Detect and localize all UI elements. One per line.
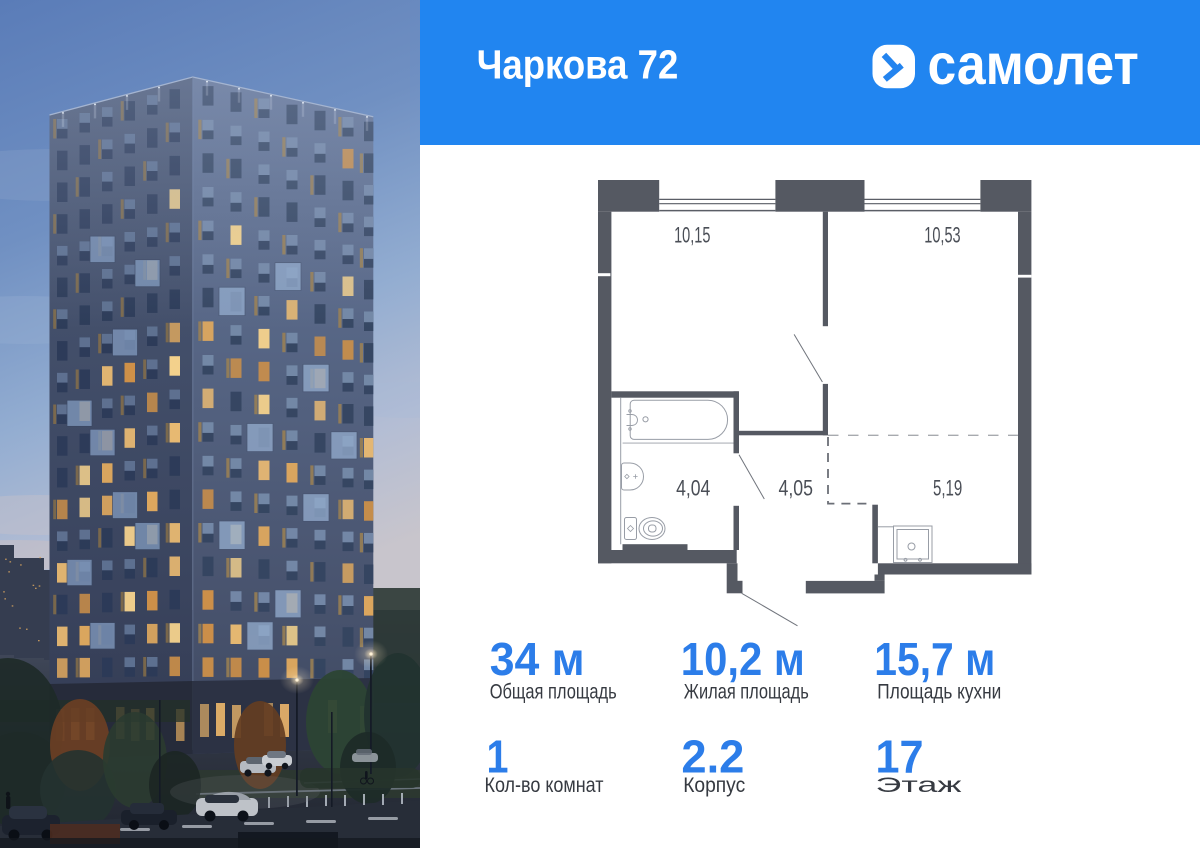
svg-text:Кол-во комнат: Кол-во комнат bbox=[485, 773, 604, 797]
svg-text:Жилая площадь: Жилая площадь bbox=[684, 680, 809, 704]
svg-text:10,2 м: 10,2 м bbox=[681, 633, 805, 685]
svg-text:10,15: 10,15 bbox=[674, 223, 710, 248]
svg-text:4,04: 4,04 bbox=[676, 476, 710, 501]
svg-text:5,19: 5,19 bbox=[933, 476, 962, 501]
svg-text:Чаркова 72: Чаркова 72 bbox=[477, 41, 679, 87]
svg-text:Площадь кухни: Площадь кухни bbox=[877, 680, 1001, 704]
svg-text:Корпус: Корпус bbox=[683, 773, 745, 797]
svg-text:Этаж: Этаж bbox=[876, 773, 963, 797]
svg-text:10,53: 10,53 bbox=[924, 223, 960, 248]
svg-text:самолет: самолет bbox=[928, 33, 1139, 97]
svg-text:Общая площадь: Общая площадь bbox=[490, 680, 617, 704]
svg-text:4,05: 4,05 bbox=[779, 476, 814, 501]
svg-text:34 м: 34 м bbox=[490, 633, 585, 685]
svg-text:15,7 м: 15,7 м bbox=[874, 633, 995, 685]
